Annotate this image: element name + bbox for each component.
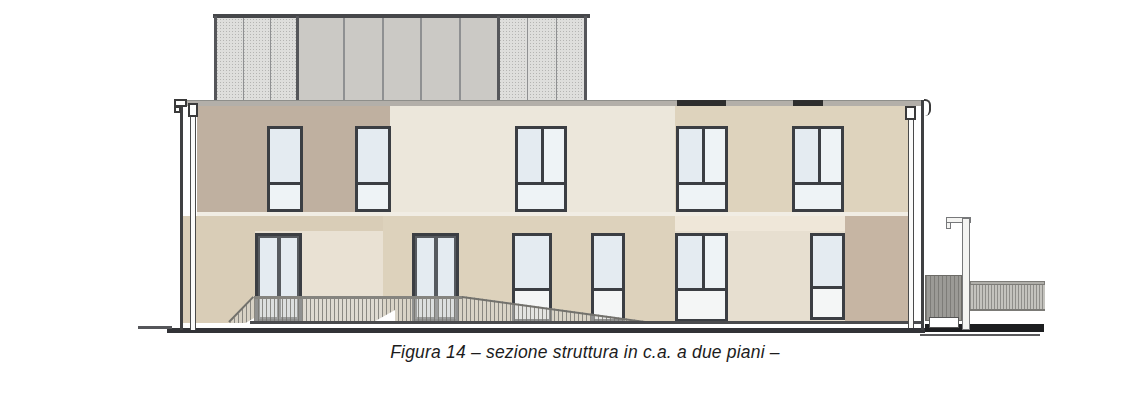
fence-slats <box>970 285 1045 309</box>
ground-line-main <box>167 328 925 333</box>
roof-seam <box>343 18 345 102</box>
left-corner-line <box>180 100 183 330</box>
ground-line-left-extension <box>138 326 172 329</box>
ground-window-2 <box>591 233 625 322</box>
gate-panel <box>925 275 962 321</box>
window-upper-2 <box>355 126 391 212</box>
window-upper-4 <box>676 126 728 212</box>
roof-post <box>584 16 587 102</box>
roof-post <box>497 16 500 102</box>
roof-post <box>214 16 217 102</box>
roof-seam <box>420 18 422 102</box>
roof-seam <box>556 18 557 102</box>
roof-post <box>296 16 299 102</box>
roof-seam <box>527 18 528 102</box>
fence-bottom-rail <box>970 309 1045 311</box>
ground-band-beige <box>255 216 383 231</box>
window-upper-1 <box>267 126 303 212</box>
right-scupper-hook <box>924 99 931 116</box>
roof-solid-panel <box>298 18 499 102</box>
fence-right <box>970 281 1045 311</box>
ground-window-3 <box>675 233 728 322</box>
ground-wall-taupe-right <box>845 216 908 323</box>
roof-seam <box>270 18 271 102</box>
ground-band-light <box>675 216 845 231</box>
walkway-edge-line <box>250 321 921 324</box>
right-downspout-bracket <box>905 106 916 120</box>
ground-window-4 <box>810 233 845 320</box>
roof-mesh-panel-left <box>216 18 298 102</box>
ground-line-right-thin <box>920 334 1040 336</box>
gate-base-box <box>929 317 959 328</box>
pole-post <box>962 218 970 330</box>
railing-horizontal <box>254 296 462 323</box>
right-downspout <box>908 107 914 328</box>
roof-seam <box>382 18 384 102</box>
roof-seam <box>243 18 244 102</box>
window-upper-3 <box>515 126 567 212</box>
pole-arm-tab <box>946 222 951 229</box>
right-corner-line <box>921 100 924 330</box>
left-downspout-bracket <box>188 103 198 117</box>
left-downspout <box>190 107 196 330</box>
roof-mesh-panel-right <box>499 18 587 102</box>
figure-canvas: Figura 14 – sezione struttura in c.a. a … <box>0 0 1130 415</box>
figure-caption: Figura 14 – sezione struttura in c.a. a … <box>40 342 1130 363</box>
roof-seam <box>459 18 461 102</box>
left-scupper-lower <box>174 106 181 113</box>
window-upper-5 <box>792 126 844 212</box>
